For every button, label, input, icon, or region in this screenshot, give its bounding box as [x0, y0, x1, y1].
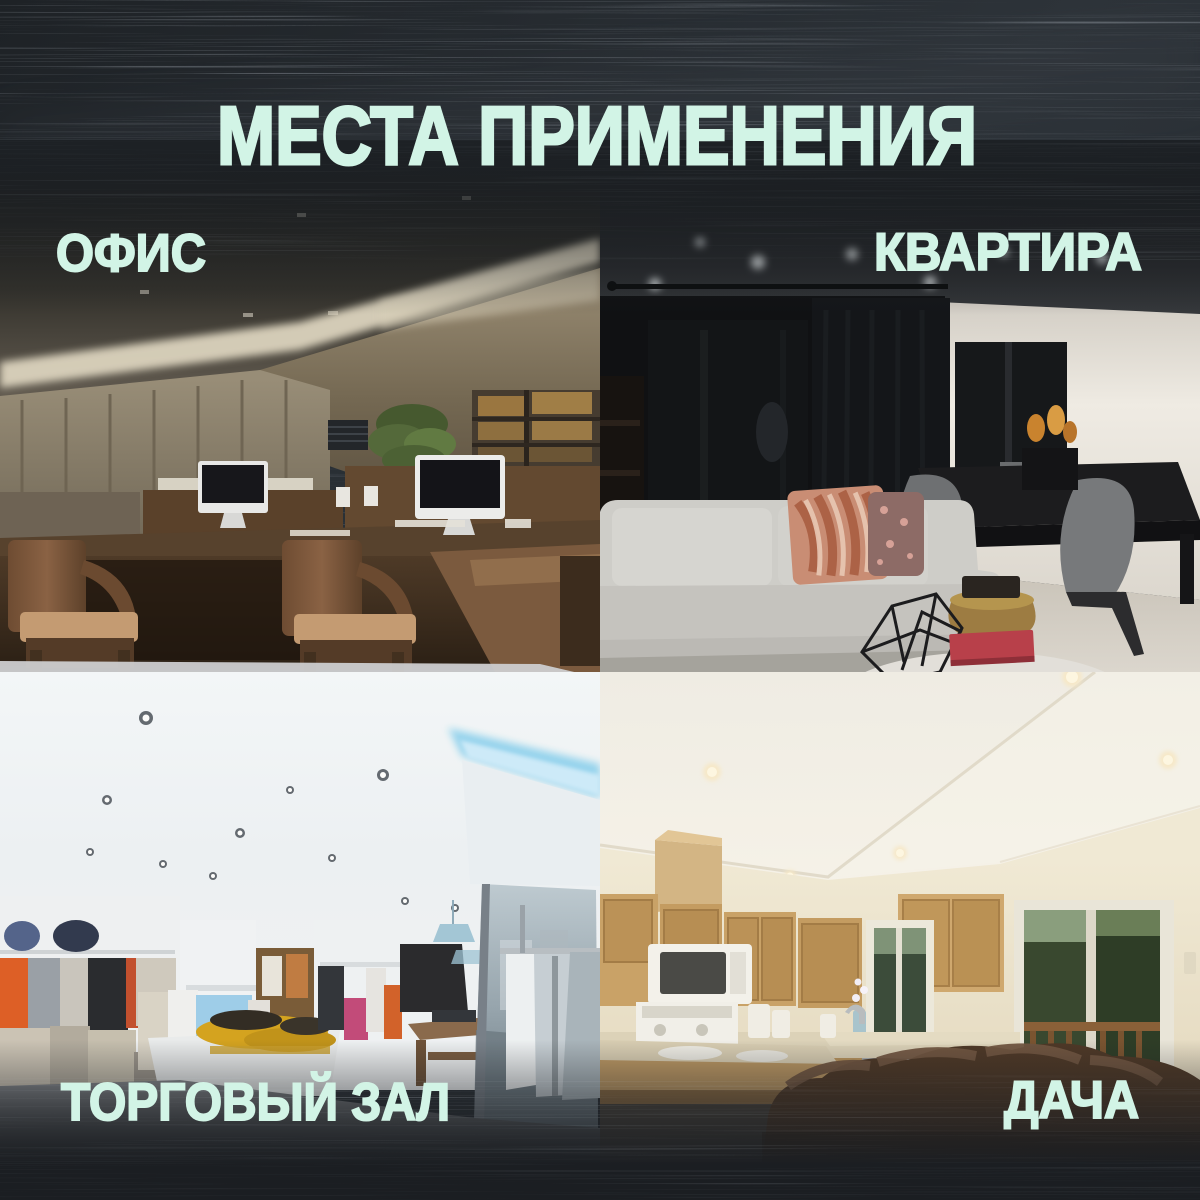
- svg-text:ДАЧА: ДАЧА: [1004, 1071, 1139, 1130]
- svg-text:МЕСТА ПРИМЕНЕНИЯ: МЕСТА ПРИМЕНЕНИЯ: [217, 89, 977, 182]
- svg-text:КВАРТИРА: КВАРТИРА: [874, 223, 1142, 282]
- svg-text:ОФИС: ОФИС: [56, 224, 206, 283]
- svg-text:ТОРГОВЫЙ ЗАЛ: ТОРГОВЫЙ ЗАЛ: [61, 1071, 450, 1132]
